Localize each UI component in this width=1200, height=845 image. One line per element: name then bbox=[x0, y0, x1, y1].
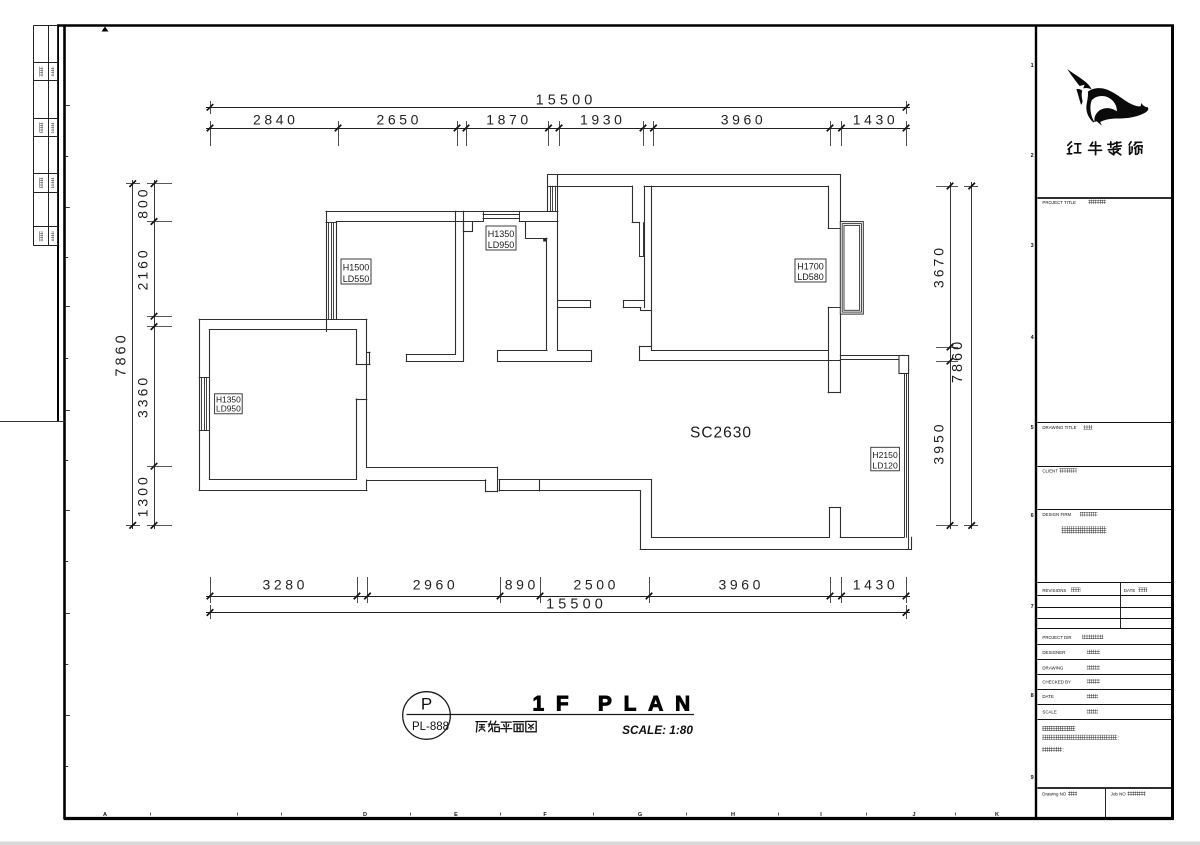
svg-text:3950: 3950 bbox=[931, 421, 947, 464]
svg-text:CLIENT: CLIENT bbox=[1042, 469, 1058, 474]
svg-text:1: 1 bbox=[1031, 63, 1034, 69]
svg-text:H1350: H1350 bbox=[488, 229, 515, 239]
svg-text:2: 2 bbox=[1031, 153, 1034, 159]
svg-text:1F PLAN: 1F PLAN bbox=[532, 693, 701, 716]
svg-text:3: 3 bbox=[1031, 243, 1034, 249]
svg-text:H: H bbox=[731, 812, 735, 818]
svg-text:3670: 3670 bbox=[931, 245, 947, 288]
svg-text:K: K bbox=[995, 812, 999, 818]
svg-text:P: P bbox=[421, 695, 432, 714]
svg-text:DESIGNER: DESIGNER bbox=[1042, 650, 1065, 655]
svg-text:1300: 1300 bbox=[134, 474, 150, 517]
svg-text::: : bbox=[1063, 748, 1064, 754]
svg-text:9: 9 bbox=[1031, 775, 1034, 781]
svg-text:LD580: LD580 bbox=[797, 272, 824, 282]
svg-text:15500: 15500 bbox=[536, 92, 597, 108]
svg-text:5: 5 bbox=[1031, 425, 1034, 431]
svg-text:1930: 1930 bbox=[580, 112, 626, 128]
svg-text:E: E bbox=[454, 812, 458, 818]
svg-text:2500: 2500 bbox=[574, 577, 620, 593]
svg-text:DATE: DATE bbox=[1124, 588, 1135, 593]
svg-text:DESIGN FIRM: DESIGN FIRM bbox=[1042, 512, 1071, 517]
svg-text:SCALE: SCALE bbox=[1042, 709, 1056, 714]
svg-text:7: 7 bbox=[1031, 604, 1034, 610]
svg-text:REVISIONS: REVISIONS bbox=[1042, 588, 1066, 593]
svg-text:7860: 7860 bbox=[114, 332, 130, 376]
svg-text:3960: 3960 bbox=[719, 577, 765, 593]
svg-text:2160: 2160 bbox=[134, 247, 150, 290]
svg-text:SC2630: SC2630 bbox=[690, 425, 752, 442]
svg-text:DATE: DATE bbox=[1042, 694, 1053, 699]
svg-text:800: 800 bbox=[134, 186, 150, 218]
svg-text:LD950: LD950 bbox=[488, 240, 515, 250]
svg-text:A: A bbox=[103, 812, 107, 818]
svg-text:LD550: LD550 bbox=[343, 274, 370, 284]
svg-text:PL-888: PL-888 bbox=[412, 721, 449, 733]
svg-text:2650: 2650 bbox=[377, 112, 423, 128]
svg-text:1870: 1870 bbox=[486, 112, 532, 128]
svg-text:DRAWING TITLE: DRAWING TITLE bbox=[1042, 425, 1076, 430]
svg-text:890: 890 bbox=[505, 577, 539, 593]
svg-text:H2150: H2150 bbox=[872, 450, 898, 460]
svg-text:3280: 3280 bbox=[263, 577, 309, 593]
svg-text:8: 8 bbox=[1031, 693, 1034, 699]
svg-text:Drawing NO: Drawing NO bbox=[1042, 792, 1066, 797]
svg-text:PROJECT TITLE: PROJECT TITLE bbox=[1042, 200, 1076, 205]
svg-text:D: D bbox=[363, 812, 367, 818]
svg-text:2840: 2840 bbox=[253, 112, 299, 128]
svg-text:7860: 7860 bbox=[950, 339, 966, 383]
svg-text:DRAWING: DRAWING bbox=[1042, 665, 1064, 670]
svg-text:LD120: LD120 bbox=[872, 461, 898, 471]
svg-text:Job NO: Job NO bbox=[1111, 792, 1126, 797]
svg-text::: : bbox=[1118, 736, 1119, 742]
svg-text:SCALE: 1:80: SCALE: 1:80 bbox=[622, 723, 693, 737]
svg-text:3960: 3960 bbox=[721, 112, 767, 128]
svg-text:H1700: H1700 bbox=[797, 261, 824, 271]
svg-text:3360: 3360 bbox=[134, 375, 150, 418]
svg-text:1430: 1430 bbox=[853, 112, 899, 128]
svg-text:H1500: H1500 bbox=[343, 262, 370, 272]
svg-text:G: G bbox=[638, 812, 642, 818]
svg-text:15500: 15500 bbox=[546, 597, 607, 613]
svg-text:6: 6 bbox=[1031, 513, 1034, 519]
svg-text:LD950: LD950 bbox=[216, 404, 241, 414]
svg-text:CHECKED BY: CHECKED BY bbox=[1042, 679, 1071, 684]
svg-text:2960: 2960 bbox=[413, 577, 459, 593]
svg-text:PROJECT DIR: PROJECT DIR bbox=[1042, 635, 1071, 640]
svg-text:1430: 1430 bbox=[853, 577, 899, 593]
svg-text:J: J bbox=[912, 812, 915, 818]
